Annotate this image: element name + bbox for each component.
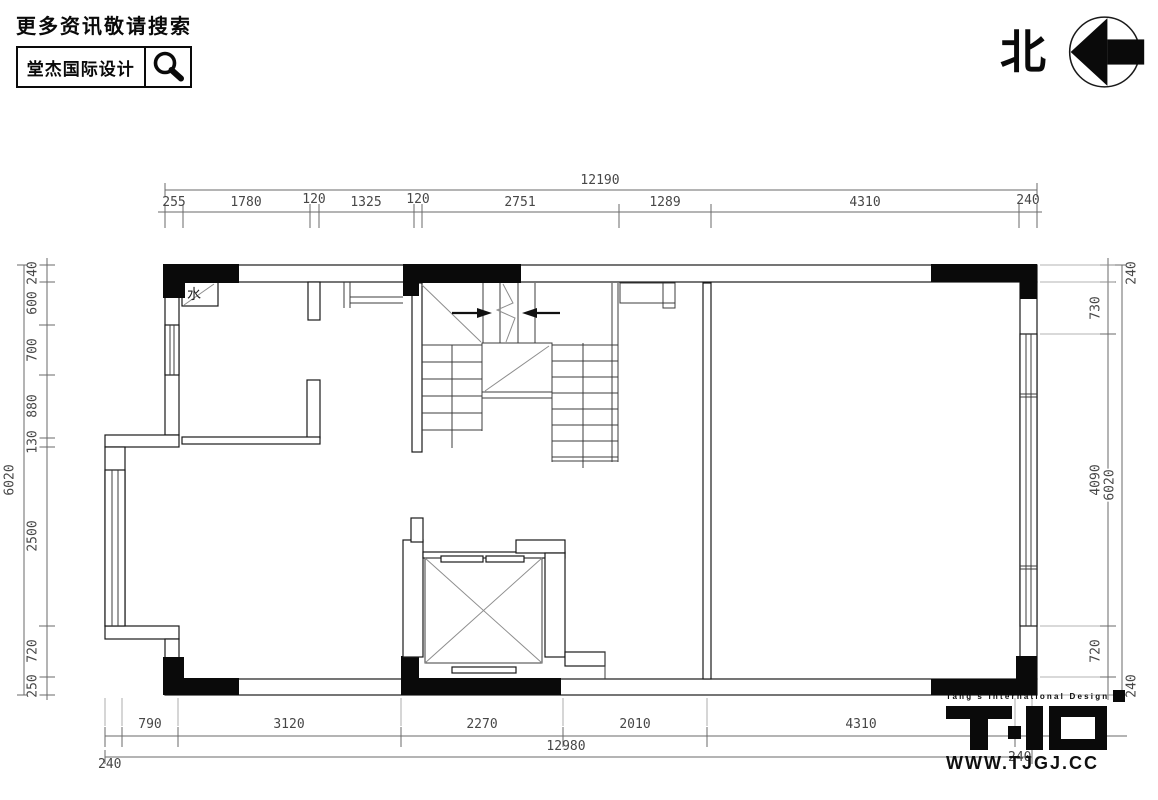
dim-right-segment: 720 bbox=[1090, 638, 1103, 663]
search-hint-text: 更多资讯敬请搜索 bbox=[16, 10, 192, 39]
windows bbox=[105, 325, 1037, 626]
dim-left-segment: 2500 bbox=[27, 519, 40, 552]
columns bbox=[163, 264, 1037, 695]
dim-top-segment: 120 bbox=[406, 193, 429, 206]
dim-right-segment: 240 bbox=[1126, 260, 1139, 285]
tid-logo bbox=[946, 704, 1110, 752]
dim-bottom-segment: 4310 bbox=[845, 718, 876, 731]
dim-top-segment: 2751 bbox=[504, 196, 535, 209]
elevator bbox=[403, 518, 605, 679]
dividing-wall bbox=[703, 283, 711, 679]
brand-block: 更多资讯敬请搜索 堂杰国际设计 bbox=[16, 10, 192, 88]
dim-top-segment: 1289 bbox=[649, 196, 680, 209]
room-label-water: 水 bbox=[187, 287, 201, 301]
wall-stub bbox=[308, 282, 320, 320]
dim-left-segment: 600 bbox=[27, 290, 40, 315]
dim-left-segment: 880 bbox=[27, 393, 40, 418]
top-cabinet-left bbox=[344, 282, 403, 308]
dim-top-segment: 1780 bbox=[230, 196, 261, 209]
extension-lines bbox=[105, 265, 1115, 726]
dim-left-total: 6020 bbox=[4, 463, 17, 496]
dim-top-segment: 4310 bbox=[849, 196, 880, 209]
dim-left-segment: 130 bbox=[27, 429, 40, 454]
dim-left-segment: 240 bbox=[27, 260, 40, 285]
dim-right-segment: 4090 bbox=[1090, 463, 1103, 496]
dim-right-segment: 730 bbox=[1090, 295, 1103, 320]
dim-left-segment: 720 bbox=[27, 638, 40, 663]
dim-left-segment: 250 bbox=[27, 673, 40, 698]
designer-logo-block: Tang's International Design WWW.TJGJ.CC bbox=[946, 690, 1142, 774]
logo-website: WWW.TJGJ.CC bbox=[946, 753, 1142, 774]
search-icon bbox=[146, 48, 190, 86]
dim-bottom-segment: 3120 bbox=[273, 718, 304, 731]
dim-top-total: 12190 bbox=[580, 174, 619, 187]
walls bbox=[105, 265, 1037, 695]
elevator-sill bbox=[452, 667, 516, 673]
dim-top-segment: 255 bbox=[162, 196, 185, 209]
floor-plan-drawing bbox=[0, 0, 1158, 800]
dim-bottom-segment: 790 bbox=[138, 718, 161, 731]
dim-bottom-total: 12980 bbox=[546, 740, 585, 753]
north-indicator: 北 bbox=[1000, 8, 1150, 96]
dim-bottom-segment: 2270 bbox=[466, 718, 497, 731]
floor-plan-page: 更多资讯敬请搜索 堂杰国际设计 北 水 255 1780 120 1325 12… bbox=[0, 0, 1158, 800]
elevator-door bbox=[486, 556, 524, 562]
north-arrow-icon bbox=[1060, 8, 1150, 96]
brand-search-box: 堂杰国际设计 bbox=[16, 46, 192, 88]
dim-bottom-end: 240 bbox=[98, 758, 121, 771]
dim-right-total: 6020 bbox=[1104, 468, 1117, 501]
logo-tagline-text: Tang's International Design bbox=[946, 692, 1109, 701]
logo-cap-square bbox=[1113, 690, 1125, 702]
stair-wall bbox=[412, 283, 422, 452]
brand-name: 堂杰国际设计 bbox=[18, 48, 144, 86]
dim-top-segment: 240 bbox=[1016, 194, 1039, 207]
logo-tagline: Tang's International Design bbox=[946, 690, 1142, 702]
dim-top-segment: 120 bbox=[302, 193, 325, 206]
stair-direction-arrows bbox=[452, 308, 560, 318]
top-cabinet-right bbox=[620, 283, 675, 303]
dim-top-segment: 1325 bbox=[350, 196, 381, 209]
dim-left-segment: 700 bbox=[27, 337, 40, 362]
dim-bottom-segment: 2010 bbox=[619, 718, 650, 731]
elevator-door bbox=[441, 556, 483, 562]
north-label: 北 bbox=[1000, 29, 1046, 75]
